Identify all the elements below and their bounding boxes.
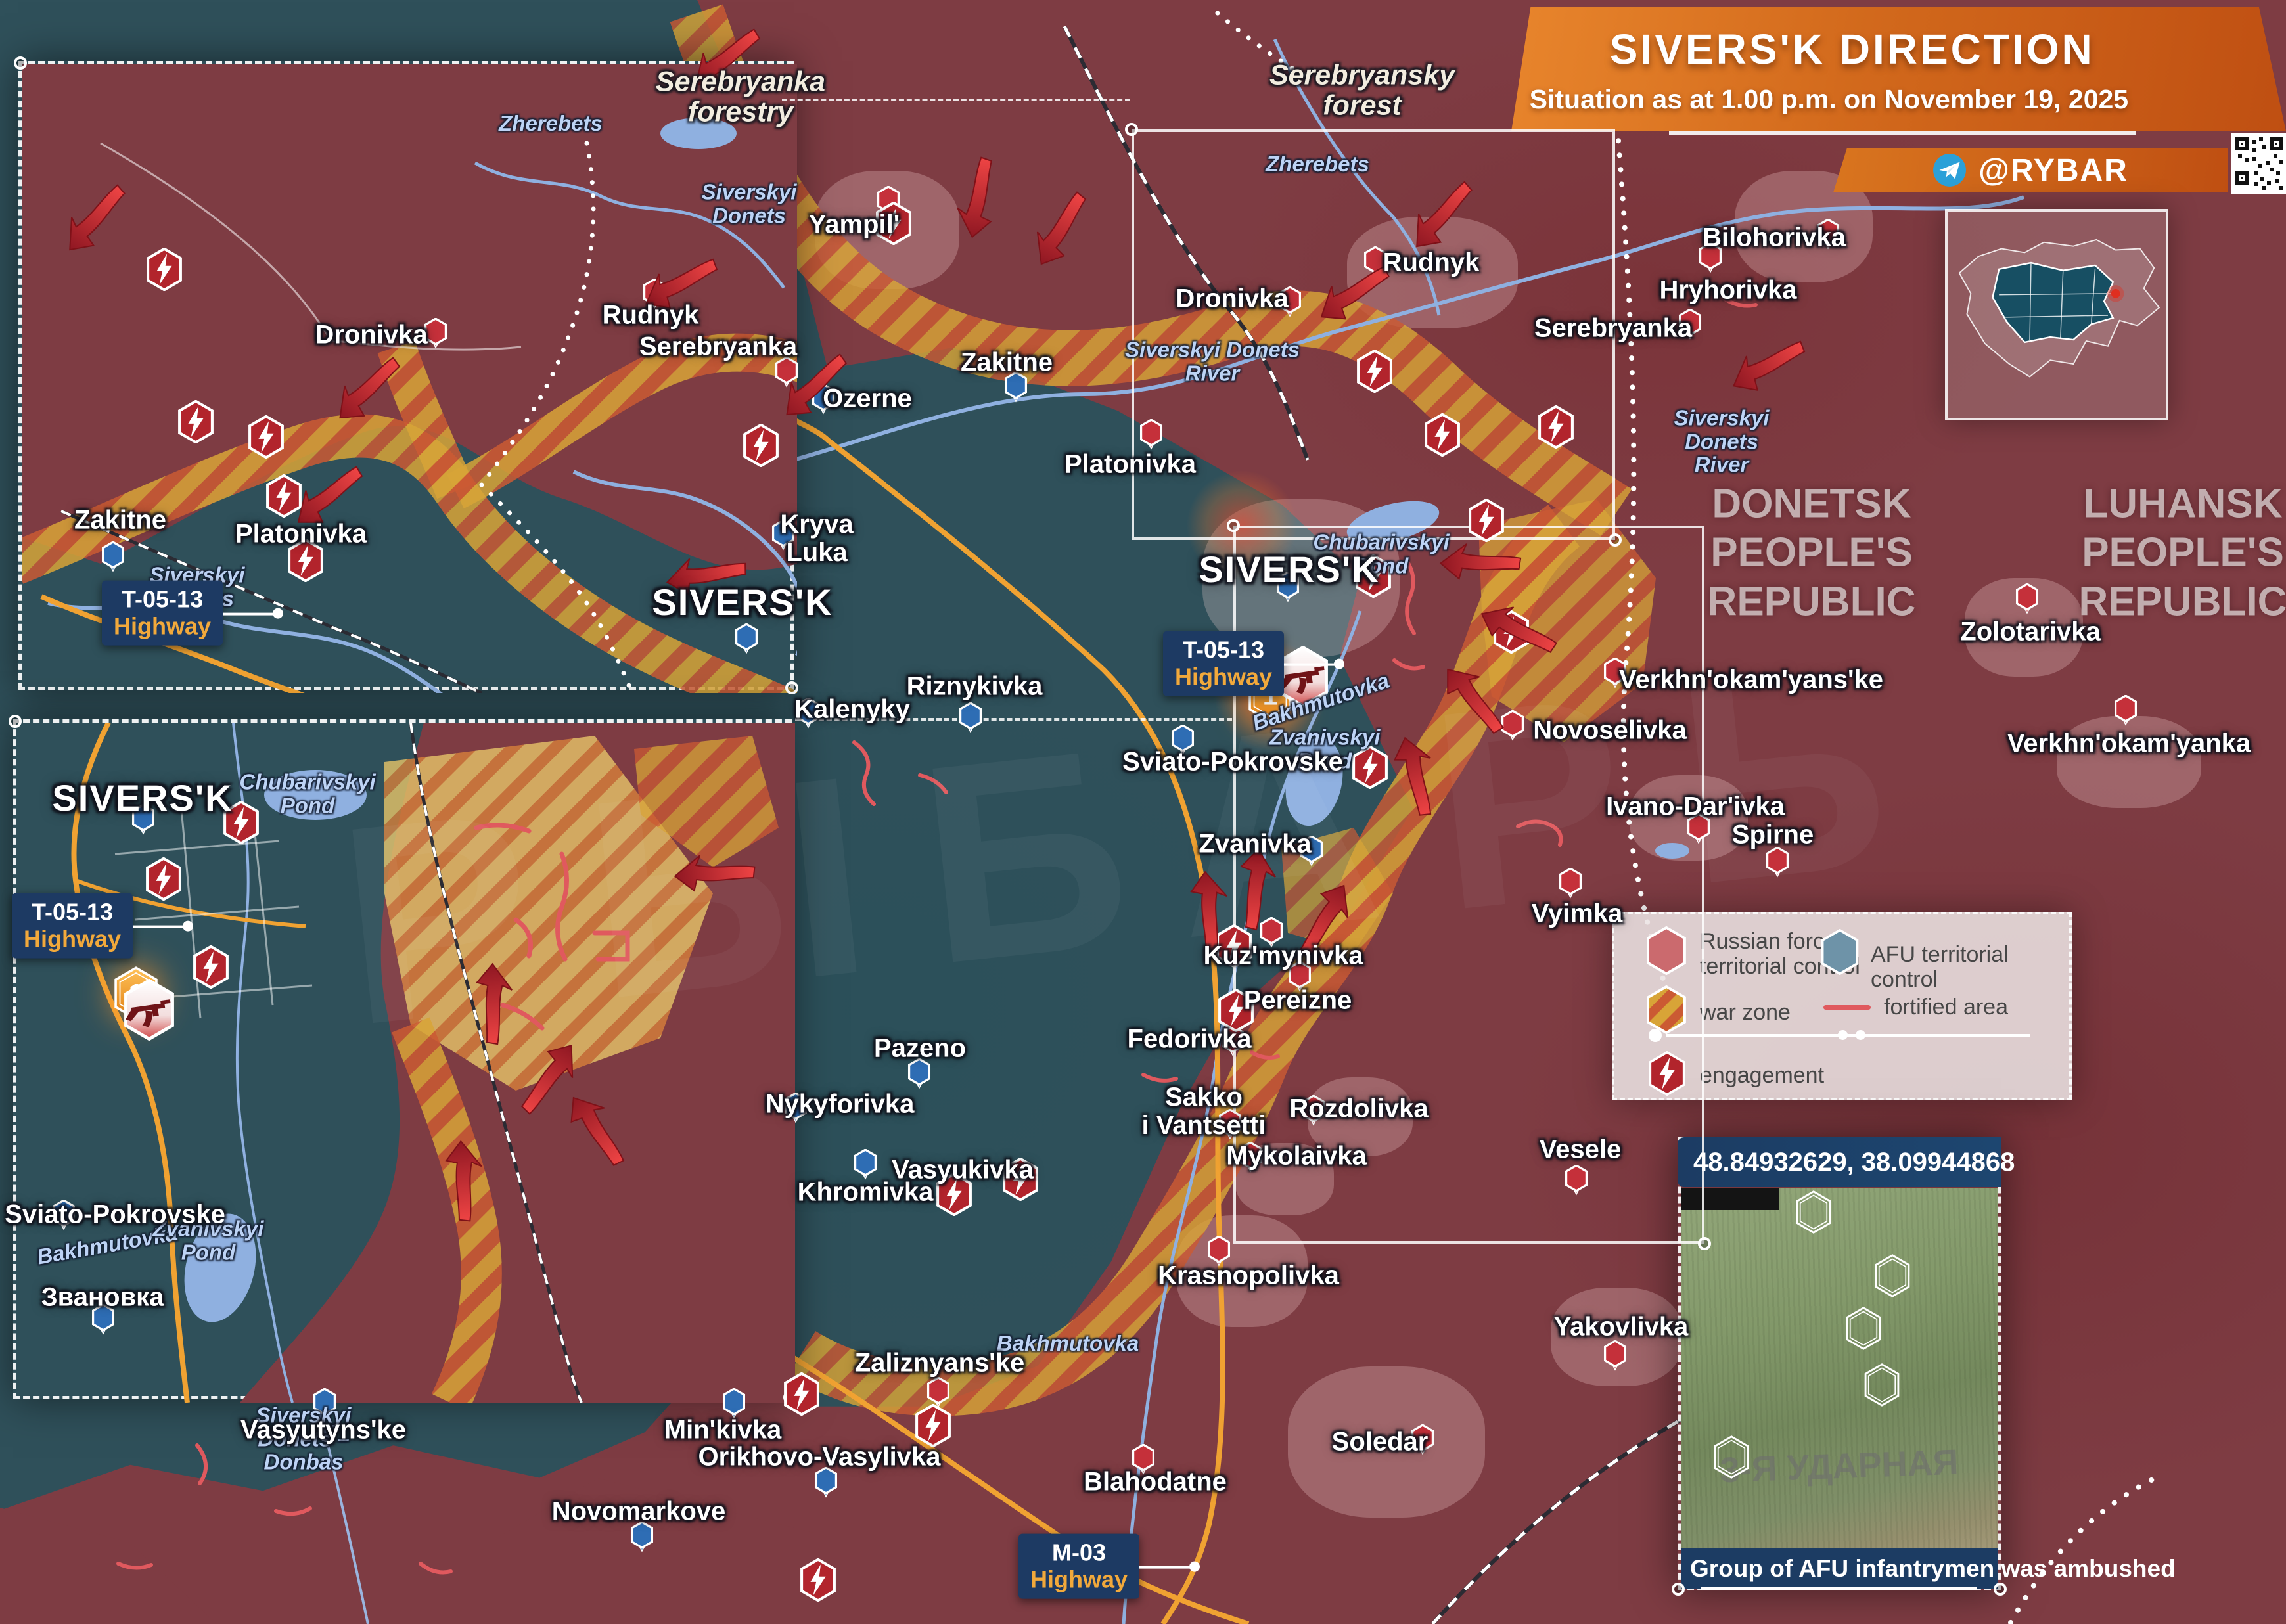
map-label-town: Zakitne: [961, 348, 1053, 376]
target-outline-hex: [1844, 1307, 1883, 1350]
engagement-icon: [914, 1404, 952, 1447]
highway-word: Highway: [24, 926, 121, 953]
engagement-icon: [742, 424, 780, 467]
map-label-town: Zakitne: [74, 506, 166, 534]
settlement-marker-red: [2114, 695, 2137, 727]
map-label-town: Hryhorivka: [1660, 276, 1797, 304]
map-label-city: SIVERS'K: [52, 778, 233, 818]
target-outline-hex: [1863, 1363, 1901, 1407]
map-label-region: LUHANSK PEOPLE'S REPUBLIC: [2079, 480, 2286, 626]
settlement-marker-blue: [101, 541, 125, 573]
engagement-icon: [875, 202, 913, 245]
settlement-marker-blue: [796, 698, 820, 729]
settlement-marker-red: [1699, 242, 1722, 274]
engagement-icon: [177, 400, 215, 443]
settlement-marker-blue: [1171, 725, 1195, 756]
highway-badge: T-05-13Highway: [102, 581, 223, 646]
settlement-marker-blue: [735, 623, 758, 655]
map-label-river: Bakhmutovka: [35, 1221, 179, 1269]
settlement-marker-red: [775, 357, 798, 388]
map-label-town: Dronivka: [315, 321, 427, 349]
target-outline-hex: [1873, 1254, 1911, 1297]
map-label-town: Nykyforivka: [766, 1090, 915, 1118]
map-label-town: Riznykivka: [907, 672, 1043, 700]
map-label-town: Serebryanka: [639, 332, 797, 361]
highway-word: Highway: [1030, 1566, 1128, 1593]
map-label-river: Siverskyi Donets: [702, 180, 797, 227]
viewport-connector: [782, 99, 1130, 101]
map-label-river: Zvanivskyi Pond: [153, 1217, 264, 1263]
highway-badge: T-05-13Highway: [12, 893, 133, 959]
engagement-icon: [145, 857, 183, 901]
settlement-marker-red: [1132, 1444, 1155, 1476]
map-label-town: Rudnyk: [603, 301, 699, 329]
map-label-river: Siverskyi Donets River: [1674, 407, 1770, 477]
attack-arrow: [418, 1135, 501, 1230]
map-label-river: Siverskyi Donets – Donbas: [256, 1404, 352, 1474]
numbered-event-marker: 1: [112, 966, 160, 1020]
map-label-forest: Serebryansky forest: [1269, 60, 1455, 122]
war-map-screenshot: {"":""}: [0, 0, 2286, 1624]
attack-arrow: [276, 442, 388, 554]
map-label-town: Verkhn'okam'yanka: [2007, 729, 2251, 757]
highway-number: T-05-13: [1175, 637, 1272, 664]
attack-arrow: [539, 1077, 650, 1189]
map-label-region: DONETSK PEOPLE'S REPUBLIC: [1708, 480, 1916, 626]
settlement-marker-blue: [854, 1149, 877, 1181]
settlement-marker-red: [1678, 309, 1702, 340]
attack-arrow: [658, 532, 759, 624]
map-label-river: Chubarivskyi Pond: [239, 770, 375, 817]
map-label-city: SIVERS'K: [652, 583, 833, 622]
map-label-town: Orikhovo-Vasylivka: [698, 1443, 940, 1471]
target-outline-hex: [1795, 1190, 1833, 1234]
settlement-marker-red: [1411, 1424, 1434, 1456]
engagement-icon: [222, 801, 260, 844]
highway-number: T-05-13: [114, 586, 211, 613]
attack-arrow: [45, 164, 153, 276]
attack-arrow: [763, 332, 873, 443]
engagement-icon: [265, 474, 303, 518]
attack-arrow: [1014, 176, 1116, 284]
settlement-marker-red: [877, 186, 900, 217]
settlement-marker-blue: [52, 1200, 76, 1231]
engagement-icon: [145, 248, 183, 291]
settlement-marker-blue: [907, 1058, 931, 1090]
map-label-forest: Serebryanka forestry: [656, 67, 825, 128]
settlement-marker-blue: [814, 1467, 838, 1499]
map-label-town: Vasyukivka: [892, 1156, 1034, 1184]
settlement-marker-red: [424, 318, 447, 350]
viewport-rect: [1233, 526, 1704, 1244]
settlement-marker-blue: [771, 520, 795, 551]
map-label-town: Spirne: [1732, 821, 1814, 849]
settlement-marker-blue: [630, 1522, 654, 1553]
settlement-marker-red: [1603, 1340, 1627, 1372]
map-label-town: Krasnopolivka: [1158, 1261, 1339, 1290]
highway-badge: M-03Highway: [1018, 1534, 1139, 1599]
settlement-marker-red: [1207, 1236, 1231, 1267]
attack-arrow: [943, 151, 1022, 242]
map-label-town: Khromivka: [798, 1178, 934, 1206]
viewport-node: [1698, 1237, 1711, 1250]
map-label-river: Zherebets: [499, 112, 603, 135]
settlement-marker-blue: [784, 1093, 808, 1124]
attack-arrow: [450, 959, 530, 1050]
engagement-icon: [286, 539, 325, 582]
engagement-icon: [783, 1372, 821, 1416]
map-label-town: Ozerne: [823, 384, 912, 413]
map-label-town: Soledar: [1332, 1428, 1429, 1456]
map-label-town: Kryva Luka: [780, 510, 853, 567]
settlement-marker-red: [1816, 219, 1840, 250]
engagement-icon: [247, 415, 285, 459]
settlement-marker-red: [1766, 847, 1789, 878]
settlement-marker-red: [2015, 583, 2039, 615]
map-label-town: Blahodatne: [1084, 1468, 1227, 1496]
map-label-town: Bilohorivka: [1703, 223, 1846, 252]
viewport-rect: [1132, 129, 1615, 540]
engagement-icon: [799, 1558, 837, 1602]
settlement-marker-blue: [812, 384, 835, 415]
settlement-marker-blue: [1004, 372, 1028, 403]
attack-arrow: [628, 232, 739, 340]
svg-text:1: 1: [129, 979, 143, 1008]
map-label-town: Zolotarivka: [1960, 618, 2100, 646]
map-label-town: Platonivka: [235, 520, 367, 548]
map-label-river: Bakhmutovka: [997, 1332, 1139, 1355]
highway-badge: T-05-13Highway: [1163, 631, 1284, 696]
settlement-marker-blue: [91, 1304, 115, 1336]
map-label-town: Sviato-Pokrovske: [5, 1200, 225, 1229]
map-label-town: Звановка: [41, 1283, 164, 1311]
engagement-icon: [1001, 1158, 1040, 1201]
settlement-marker-blue: [313, 1388, 336, 1420]
viewport-connector: [795, 718, 1232, 721]
attack-arrow: [316, 335, 426, 447]
settlement-marker-red: [926, 1377, 950, 1409]
engagement-icon: [935, 1173, 973, 1216]
ambush-rifle-icon: [122, 979, 177, 1041]
settlement-marker-blue: [131, 804, 155, 836]
map-label-town: Pazeno: [874, 1034, 966, 1062]
map-label-town: Yampil': [809, 210, 900, 238]
map-overlay: 1 1 Serebryansky forestSerebryanka fores…: [0, 0, 2286, 1624]
highway-number: T-05-13: [24, 899, 121, 926]
map-label-town: Min'kivka: [664, 1416, 781, 1444]
attack-arrow: [669, 835, 764, 918]
map-label-town: Novomarkove: [552, 1497, 726, 1525]
highway-number: M-03: [1030, 1539, 1128, 1566]
highway-word: Highway: [114, 613, 211, 640]
viewport-node: [1125, 123, 1138, 136]
attack-arrow: [493, 1022, 598, 1133]
map-label-town: Zaliznyans'ke: [855, 1349, 1025, 1377]
engagement-icon: [192, 945, 230, 989]
settlement-marker-blue: [722, 1388, 746, 1420]
settlement-marker-red: [643, 279, 666, 310]
map-label-town: Yakovlivka: [1554, 1313, 1689, 1341]
attack-arrow: [1715, 314, 1827, 422]
highway-word: Highway: [1175, 664, 1272, 690]
viewport-node: [1227, 519, 1240, 532]
map-label-town: Vasyutyns'ke: [240, 1416, 406, 1444]
attack-arrow: [674, 5, 785, 116]
target-outline-hex: [1712, 1435, 1750, 1479]
